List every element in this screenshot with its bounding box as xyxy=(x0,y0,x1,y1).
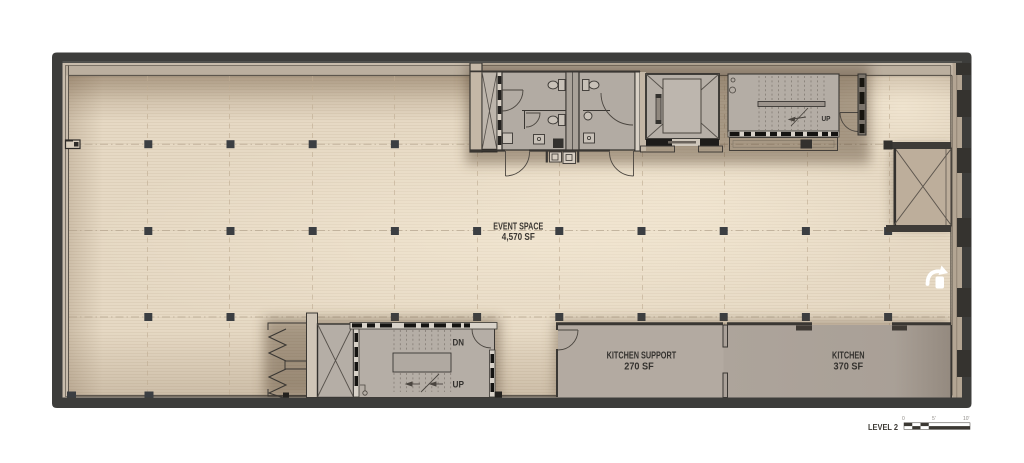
svg-text:0: 0 xyxy=(902,416,905,422)
svg-text:4,570 SF: 4,570 SF xyxy=(502,232,535,243)
svg-text:5': 5' xyxy=(932,416,936,422)
svg-text:UP: UP xyxy=(453,380,465,390)
svg-text:370 SF: 370 SF xyxy=(834,361,864,372)
svg-text:10': 10' xyxy=(963,416,970,422)
svg-text:LEVEL 2: LEVEL 2 xyxy=(868,422,898,432)
svg-text:270 SF: 270 SF xyxy=(624,361,654,372)
svg-text:KITCHEN SUPPORT: KITCHEN SUPPORT xyxy=(607,351,677,362)
svg-text:KITCHEN: KITCHEN xyxy=(832,351,865,362)
svg-text:DN: DN xyxy=(453,338,465,348)
svg-text:UP: UP xyxy=(822,114,831,123)
